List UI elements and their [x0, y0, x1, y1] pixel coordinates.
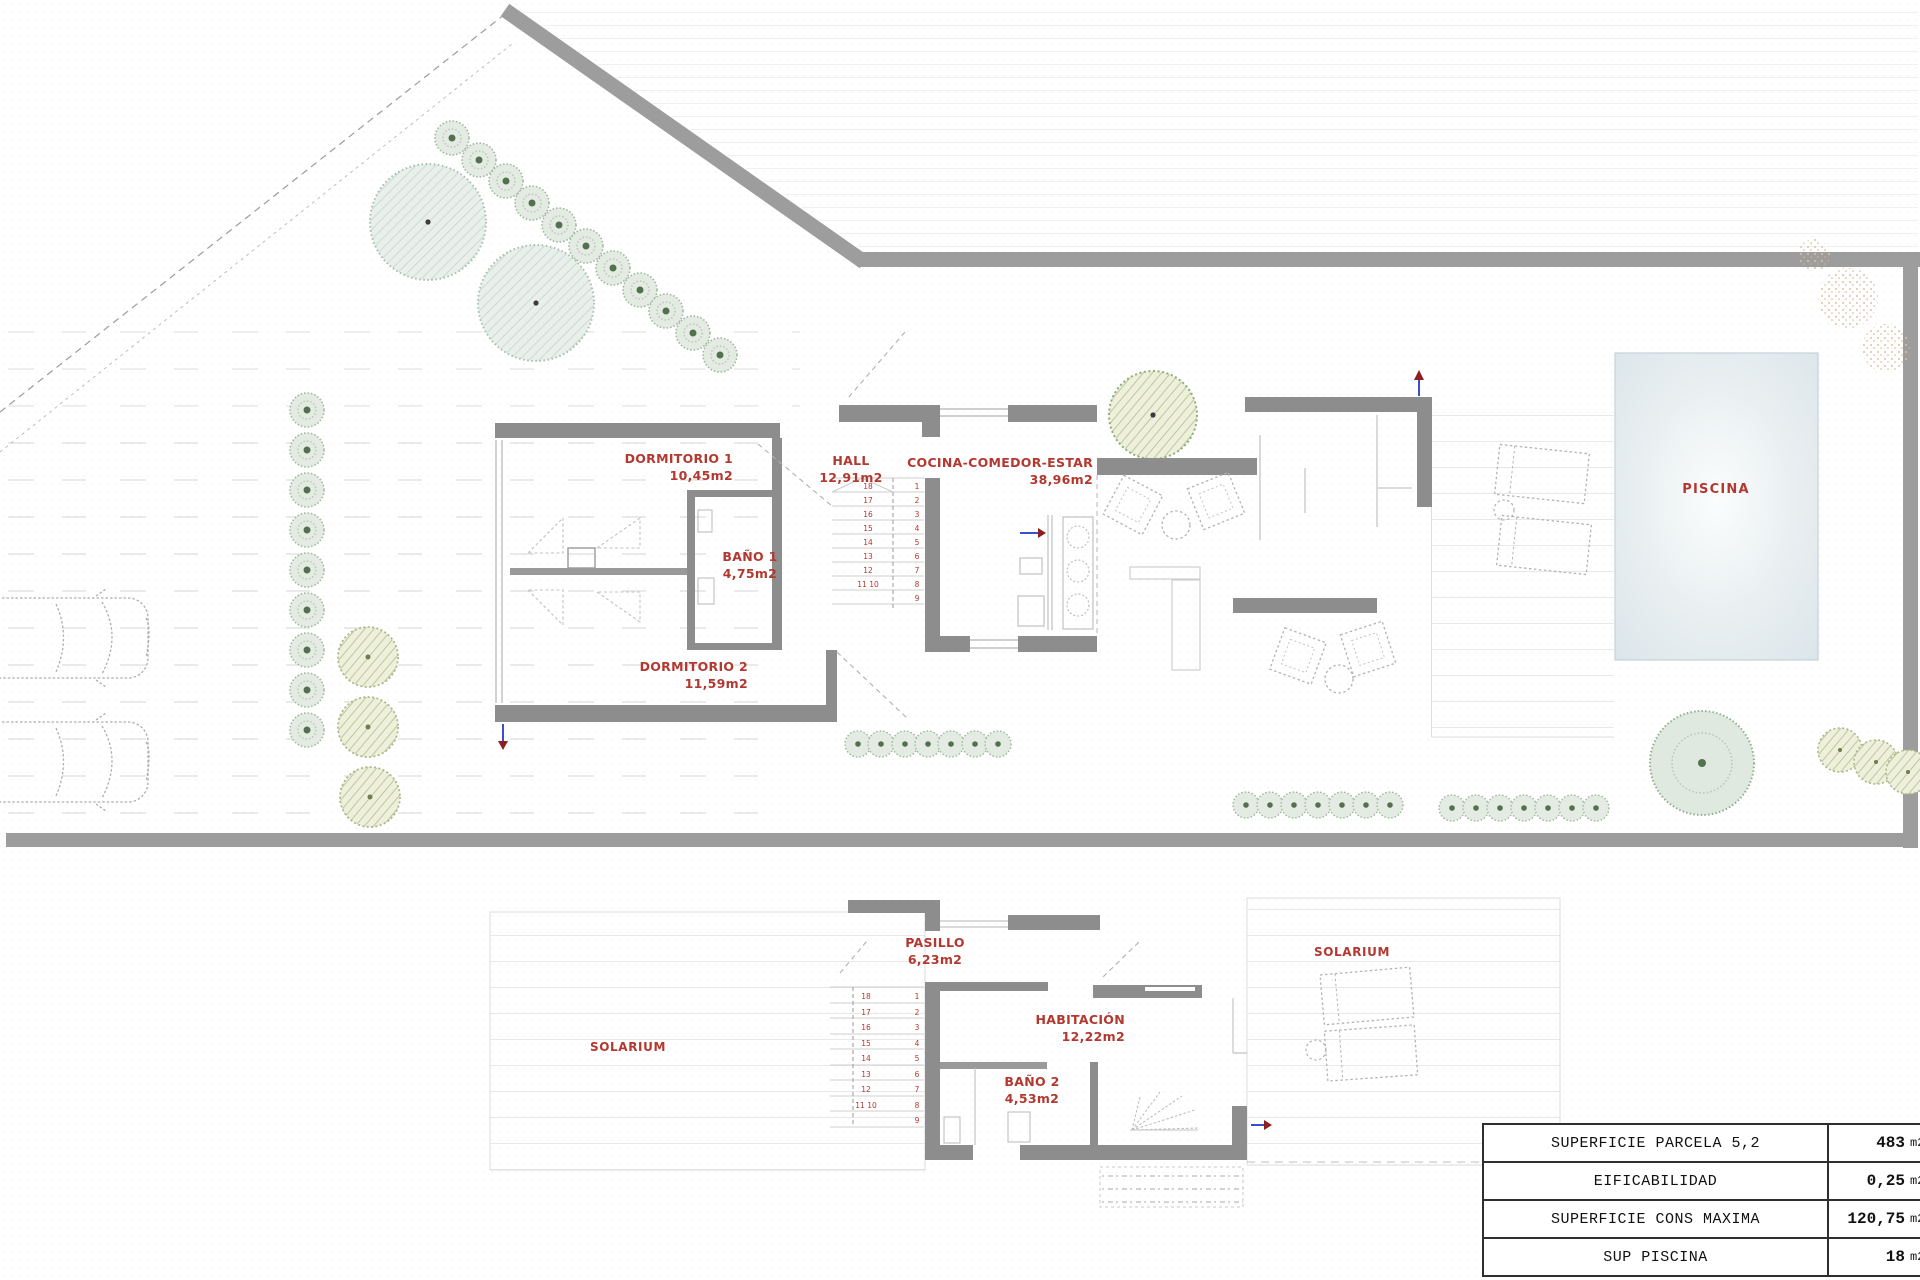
room-label-solarium-left: SOLARIUM	[590, 1039, 666, 1056]
room-label-bano1: BAÑO 1 4,75m2	[722, 548, 777, 583]
stair-numbers-first-left: 1817161514131211 10	[856, 989, 876, 1113]
room-label-habitacion: HABITACIÓN 12,22m2	[1036, 1011, 1125, 1046]
hedge-row-b	[1439, 795, 1609, 821]
bathroom2-fixtures	[944, 1112, 1030, 1143]
summary-table: SUPERFICIE PARCELA 5,2 483 m2 EIFICABILI…	[1482, 1123, 1920, 1277]
table-row: SUPERFICIE CONS MAXIMA 120,75 m2	[1484, 1199, 1920, 1237]
shower-fan	[1130, 1092, 1198, 1130]
table-row-value: 18 m2	[1829, 1239, 1920, 1275]
stair-numbers-ground-right: 123456789	[908, 480, 926, 606]
neighbor-parcel-texture	[522, 12, 1918, 250]
hedge-left-column	[290, 393, 324, 747]
table-row-label: SUPERFICIE PARCELA 5,2	[1484, 1125, 1829, 1161]
stair-numbers-ground-left: 1817161514131211 10	[858, 480, 878, 592]
room-label-bano2: BAÑO 2 4,53m2	[1004, 1073, 1059, 1108]
driveway-texture	[0, 300, 800, 835]
room-label-solarium-right: SOLARIUM	[1314, 944, 1390, 961]
room-label-dormitorio2: DORMITORIO 2 11,59m2	[640, 658, 748, 693]
table-row-label: EIFICABILIDAD	[1484, 1163, 1829, 1199]
pool	[1615, 353, 1818, 660]
table-row: SUPERFICIE PARCELA 5,2 483 m2	[1484, 1125, 1920, 1161]
table-row-label: SUPERFICIE CONS MAXIMA	[1484, 1201, 1829, 1237]
deck-texture-right	[1432, 392, 1615, 737]
table-row: SUP PISCINA 18 m2	[1484, 1237, 1920, 1275]
table-row-label: SUP PISCINA	[1484, 1239, 1829, 1275]
room-label-piscina: PISCINA	[1682, 481, 1749, 499]
site-plan-page: DORMITORIO 1 10,45m2 HALL 12,91m2 COCINA…	[0, 0, 1920, 1280]
hedge-center-row	[845, 731, 1011, 757]
table-row-value: 0,25 m2	[1829, 1163, 1920, 1199]
floor-plan-canvas	[0, 0, 1920, 1280]
hedge-row-a	[1233, 792, 1403, 818]
table-row-value: 120,75 m2	[1829, 1201, 1920, 1237]
porch-dotted-area	[1100, 1167, 1243, 1207]
living-room-armchairs	[1103, 472, 1244, 539]
room-label-pasillo: PASILLO 6,23m2	[905, 934, 965, 969]
terrace-furniture	[1270, 621, 1396, 693]
sofa	[1130, 567, 1200, 670]
room-label-dormitorio1: DORMITORIO 1 10,45m2	[625, 450, 733, 485]
kitchen-door-arrow	[1020, 528, 1046, 538]
table-row-value: 483 m2	[1829, 1125, 1920, 1161]
north-arrow	[1414, 370, 1424, 396]
table-row: EIFICABILIDAD 0,25 m2	[1484, 1161, 1920, 1199]
stair-numbers-first-right: 123456789	[908, 989, 926, 1129]
room-label-cocina-comedor-estar: COCINA-COMEDOR-ESTAR 38,96m2	[907, 454, 1093, 489]
